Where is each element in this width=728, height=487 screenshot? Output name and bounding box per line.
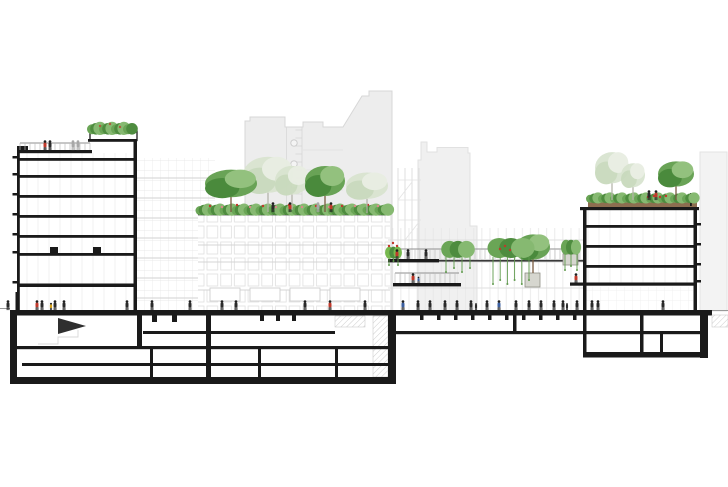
person-leg xyxy=(403,307,404,310)
soil-hatch xyxy=(335,316,365,327)
basement-structure xyxy=(10,310,728,384)
person-body xyxy=(72,143,75,148)
person-leg xyxy=(289,209,290,212)
person-body xyxy=(36,303,39,308)
person-leg xyxy=(45,147,46,150)
person-head xyxy=(475,303,477,305)
person-leg xyxy=(408,256,409,259)
basement-wall xyxy=(454,315,458,320)
vine-leaf xyxy=(453,267,455,269)
person-leg xyxy=(305,307,306,310)
person-head xyxy=(417,300,420,303)
person-body xyxy=(456,303,459,308)
window-tick xyxy=(13,251,18,254)
architectural-section-drawing xyxy=(0,0,728,487)
basement-wall xyxy=(10,310,17,384)
person-leg xyxy=(425,256,426,259)
window-tick xyxy=(13,156,18,159)
round-window xyxy=(291,140,297,146)
person-head xyxy=(498,300,501,303)
person-leg xyxy=(190,307,191,310)
window-tick xyxy=(13,213,18,216)
basement-wall xyxy=(700,313,708,358)
person-body xyxy=(41,303,44,308)
flower xyxy=(119,126,121,128)
person-body xyxy=(289,205,292,210)
basement-wall xyxy=(137,315,142,346)
person-leg xyxy=(562,307,563,310)
basement-wall xyxy=(396,331,707,334)
person-head xyxy=(317,202,320,205)
person-leg xyxy=(331,209,332,212)
walkway-slab-thin xyxy=(439,260,583,262)
person-head xyxy=(470,300,473,303)
planter-foliage xyxy=(571,240,581,255)
person-leg xyxy=(42,307,43,310)
vine-leaf xyxy=(570,265,572,267)
person-body xyxy=(412,276,415,281)
person-leg xyxy=(63,307,64,310)
walkway-slab xyxy=(388,259,439,262)
person-body xyxy=(553,303,556,308)
person-body xyxy=(189,303,192,308)
ground-slab xyxy=(10,310,712,316)
flower xyxy=(377,205,379,207)
person-leg xyxy=(189,307,190,310)
person-leg xyxy=(476,308,477,310)
basement-wall xyxy=(505,315,509,320)
person-head xyxy=(7,300,10,303)
post xyxy=(16,292,18,310)
person-body xyxy=(597,303,600,308)
person-body xyxy=(486,303,489,308)
person-body xyxy=(126,303,129,308)
person-leg xyxy=(330,209,331,212)
person-head xyxy=(63,300,66,303)
person-leg xyxy=(317,209,318,212)
person-body xyxy=(77,143,80,148)
person-leg xyxy=(649,197,650,200)
person-body xyxy=(444,303,447,308)
person-leg xyxy=(330,307,331,310)
person-head xyxy=(528,300,531,303)
person-leg xyxy=(444,307,445,310)
person-body xyxy=(50,305,52,309)
person-leg xyxy=(221,307,222,310)
roof-slab xyxy=(17,150,92,153)
person-head xyxy=(50,303,52,305)
person-leg xyxy=(396,256,397,259)
floor-slab xyxy=(586,245,694,248)
person-head xyxy=(429,300,432,303)
flower xyxy=(665,195,667,197)
person-leg xyxy=(290,209,291,212)
planter-foliage xyxy=(511,238,535,258)
person-leg xyxy=(7,307,8,310)
person-leg xyxy=(456,307,457,310)
person-body xyxy=(540,303,543,308)
storefront xyxy=(330,288,360,301)
person-body xyxy=(576,303,579,308)
person-body xyxy=(655,193,658,198)
shrub xyxy=(126,123,138,135)
window-tick xyxy=(13,281,18,284)
person-leg xyxy=(663,307,664,310)
window-tick xyxy=(697,280,701,283)
person-body xyxy=(648,193,651,198)
person-leg xyxy=(64,307,65,310)
basement-wall xyxy=(583,315,587,355)
person-body xyxy=(317,205,320,210)
tree-canopy xyxy=(362,173,387,191)
floor-slab xyxy=(19,253,134,256)
person-body xyxy=(364,303,367,308)
window-tick xyxy=(697,223,701,226)
storefront xyxy=(250,288,280,301)
flower xyxy=(659,196,661,198)
vine-leaf xyxy=(461,271,463,273)
person-leg xyxy=(41,307,42,310)
person-body xyxy=(562,303,565,308)
person-leg xyxy=(51,308,52,310)
person-head xyxy=(44,140,47,143)
basement-wall xyxy=(335,349,338,377)
flower xyxy=(504,245,506,247)
person-head xyxy=(402,300,405,303)
parapet xyxy=(17,146,28,150)
planter-pot xyxy=(525,273,540,287)
person-body xyxy=(49,143,52,148)
flower xyxy=(301,206,303,208)
basement-wall xyxy=(420,315,424,320)
basement-wall xyxy=(152,315,157,322)
basement-wall xyxy=(292,315,296,321)
person-leg xyxy=(126,307,127,310)
door-panel xyxy=(93,247,101,253)
person-leg xyxy=(397,256,398,259)
person-leg xyxy=(470,307,471,310)
shrub xyxy=(381,204,391,214)
flower xyxy=(341,205,343,207)
person-leg xyxy=(487,307,488,310)
floor-slab xyxy=(19,158,134,161)
person-head xyxy=(235,300,238,303)
floor-slab xyxy=(19,175,134,178)
person-head xyxy=(407,249,410,252)
basement-wall xyxy=(583,352,708,358)
person-leg xyxy=(540,307,541,310)
person-figure xyxy=(77,140,80,150)
person-leg xyxy=(77,147,78,150)
left-section-building xyxy=(13,131,138,310)
person-leg xyxy=(567,308,568,310)
person-body xyxy=(429,303,432,308)
person-head xyxy=(364,300,367,303)
person-leg xyxy=(222,307,223,310)
person-head xyxy=(597,300,600,303)
person-body xyxy=(396,252,399,257)
person-head xyxy=(189,300,192,303)
person-leg xyxy=(37,307,38,310)
person-head xyxy=(41,300,44,303)
person-leg xyxy=(417,307,418,310)
walkway-slab xyxy=(393,283,461,286)
flower xyxy=(236,204,238,206)
vine-leaf xyxy=(564,269,566,271)
section-canvas xyxy=(0,0,728,487)
person-leg xyxy=(553,307,554,310)
person-head xyxy=(456,300,459,303)
wall xyxy=(583,207,587,310)
person-leg xyxy=(457,307,458,310)
basement-wall xyxy=(206,310,211,377)
person-head xyxy=(77,140,80,143)
basement-wall xyxy=(388,310,396,384)
person-leg xyxy=(597,307,598,310)
person-head xyxy=(304,300,307,303)
flower xyxy=(209,205,211,207)
person-body xyxy=(418,278,420,281)
vine-leaf xyxy=(388,264,390,266)
person-leg xyxy=(272,209,273,212)
basement-wall xyxy=(573,315,577,320)
planter-foliage xyxy=(458,241,475,258)
person-body xyxy=(591,303,594,308)
flower xyxy=(388,245,390,247)
person-leg xyxy=(577,307,578,310)
shrub xyxy=(688,192,699,203)
person-figure xyxy=(72,140,75,150)
person-body xyxy=(329,303,332,308)
person-leg xyxy=(541,307,542,310)
person-leg xyxy=(419,281,420,283)
person-leg xyxy=(554,307,555,310)
podium-facade xyxy=(198,213,390,312)
person-head xyxy=(49,140,52,143)
person-head xyxy=(54,300,57,303)
floor-slab xyxy=(19,284,134,288)
right-section-building xyxy=(570,193,701,310)
person-leg xyxy=(407,256,408,259)
tree-canopy xyxy=(320,166,344,186)
person-body xyxy=(662,303,665,308)
person-head xyxy=(289,202,292,205)
flower xyxy=(262,205,264,207)
basement-wall xyxy=(471,315,475,320)
person-leg xyxy=(273,209,274,212)
person-body xyxy=(330,205,333,210)
person-leg xyxy=(364,307,365,310)
person-leg xyxy=(475,308,476,310)
storefront xyxy=(210,288,240,301)
person-leg xyxy=(412,280,413,283)
basement-wall xyxy=(437,315,441,320)
person-body xyxy=(425,252,428,257)
person-leg xyxy=(152,307,153,310)
vine-leaf xyxy=(445,271,447,273)
basement-wall xyxy=(172,315,177,322)
person-head xyxy=(515,300,518,303)
person-leg xyxy=(50,147,51,150)
person-leg xyxy=(54,307,55,310)
person-leg xyxy=(236,307,237,310)
person-body xyxy=(54,303,57,308)
person-leg xyxy=(151,307,152,310)
wall xyxy=(694,207,698,310)
person-leg xyxy=(402,307,403,310)
person-body xyxy=(407,252,410,257)
person-leg xyxy=(72,147,73,150)
storefront xyxy=(290,288,320,301)
window-tick xyxy=(697,263,701,266)
vine-leaf xyxy=(576,269,578,271)
person-leg xyxy=(486,307,487,310)
basement-wall xyxy=(150,349,153,377)
person-body xyxy=(515,303,518,308)
open-colonnade xyxy=(388,228,583,310)
person-head xyxy=(418,277,420,279)
tree-canopy xyxy=(225,170,256,188)
person-leg xyxy=(515,307,516,310)
roof-slab xyxy=(580,207,699,210)
person-leg xyxy=(127,307,128,310)
person-leg xyxy=(426,256,427,259)
person-leg xyxy=(49,147,50,150)
person-leg xyxy=(656,197,657,200)
flower xyxy=(392,242,394,244)
person-head xyxy=(662,300,665,303)
basement-wall xyxy=(17,346,388,349)
person-body xyxy=(63,303,66,308)
basement-wall xyxy=(556,315,560,320)
person-head xyxy=(655,190,658,193)
floor-slab xyxy=(570,283,694,286)
person-leg xyxy=(576,307,577,310)
person-head xyxy=(553,300,556,303)
person-body xyxy=(566,305,568,308)
person-leg xyxy=(498,307,499,310)
vine-leaf xyxy=(506,283,508,285)
vine-leaf xyxy=(528,279,530,281)
person-leg xyxy=(318,209,319,212)
person-leg xyxy=(529,307,530,310)
flower xyxy=(275,206,277,208)
person-head xyxy=(126,300,129,303)
basement-wall xyxy=(488,315,492,320)
window-tick xyxy=(13,193,18,196)
tree-canopy xyxy=(672,161,694,178)
person-head xyxy=(591,300,594,303)
person-head xyxy=(486,300,489,303)
right-building-roof-garden xyxy=(586,152,700,203)
person-leg xyxy=(662,307,663,310)
floor-slab xyxy=(586,225,694,228)
person-leg xyxy=(73,147,74,150)
person-body xyxy=(304,303,307,308)
person-body xyxy=(151,303,154,308)
vine-leaf xyxy=(521,283,523,285)
person-leg xyxy=(598,307,599,310)
person-leg xyxy=(418,307,419,310)
window-tick xyxy=(13,173,18,176)
person-body xyxy=(402,303,405,308)
person-head xyxy=(221,300,224,303)
tree-canopy xyxy=(630,163,644,179)
person-head xyxy=(576,300,579,303)
person-body xyxy=(272,205,275,210)
flower xyxy=(509,249,511,251)
basement-stair xyxy=(58,318,86,334)
person-body xyxy=(475,305,477,308)
person-head xyxy=(151,300,154,303)
wall xyxy=(134,140,138,310)
person-body xyxy=(7,303,10,308)
flower xyxy=(249,206,251,208)
person-leg xyxy=(563,307,564,310)
person-leg xyxy=(516,307,517,310)
person-body xyxy=(417,303,420,308)
person-leg xyxy=(429,307,430,310)
person-body xyxy=(44,143,47,148)
floor-slab xyxy=(19,195,134,198)
person-head xyxy=(36,300,39,303)
vine-leaf xyxy=(393,260,395,262)
vine-leaf xyxy=(492,283,494,285)
flower xyxy=(109,123,111,125)
vine-leaf xyxy=(469,267,471,269)
person-head xyxy=(575,273,578,276)
roof-planter-slab xyxy=(88,139,137,142)
person-leg xyxy=(591,307,592,310)
basement-wall xyxy=(22,363,388,366)
left-building-roof-planter xyxy=(87,122,138,135)
person-leg xyxy=(329,307,330,310)
basement-wall xyxy=(522,315,526,320)
person-body xyxy=(221,303,224,308)
person-head xyxy=(648,190,651,193)
flower xyxy=(354,205,356,207)
person-leg xyxy=(8,307,9,310)
person-body xyxy=(470,303,473,308)
basement-wall xyxy=(143,331,335,334)
basement-wall xyxy=(260,315,264,321)
person-head xyxy=(540,300,543,303)
floor-slab xyxy=(19,235,134,238)
person-head xyxy=(562,300,565,303)
person-head xyxy=(425,249,428,252)
vine-leaf xyxy=(397,264,399,266)
basement-wall xyxy=(258,349,261,377)
flower xyxy=(499,248,501,250)
person-body xyxy=(235,303,238,308)
flower xyxy=(99,125,101,127)
ground-floor-texture xyxy=(586,287,693,310)
person-leg xyxy=(365,307,366,310)
person-leg xyxy=(499,307,500,310)
person-leg xyxy=(528,307,529,310)
person-leg xyxy=(304,307,305,310)
person-head xyxy=(329,300,332,303)
person-head xyxy=(444,300,447,303)
door-panel xyxy=(50,247,58,253)
basement-wall xyxy=(640,315,644,355)
window-tick xyxy=(697,243,701,246)
flower xyxy=(221,206,223,208)
floor-slab xyxy=(19,215,134,218)
far-right-background-building xyxy=(700,152,727,311)
soil-hatch xyxy=(712,315,728,327)
vine-leaf xyxy=(514,279,516,281)
